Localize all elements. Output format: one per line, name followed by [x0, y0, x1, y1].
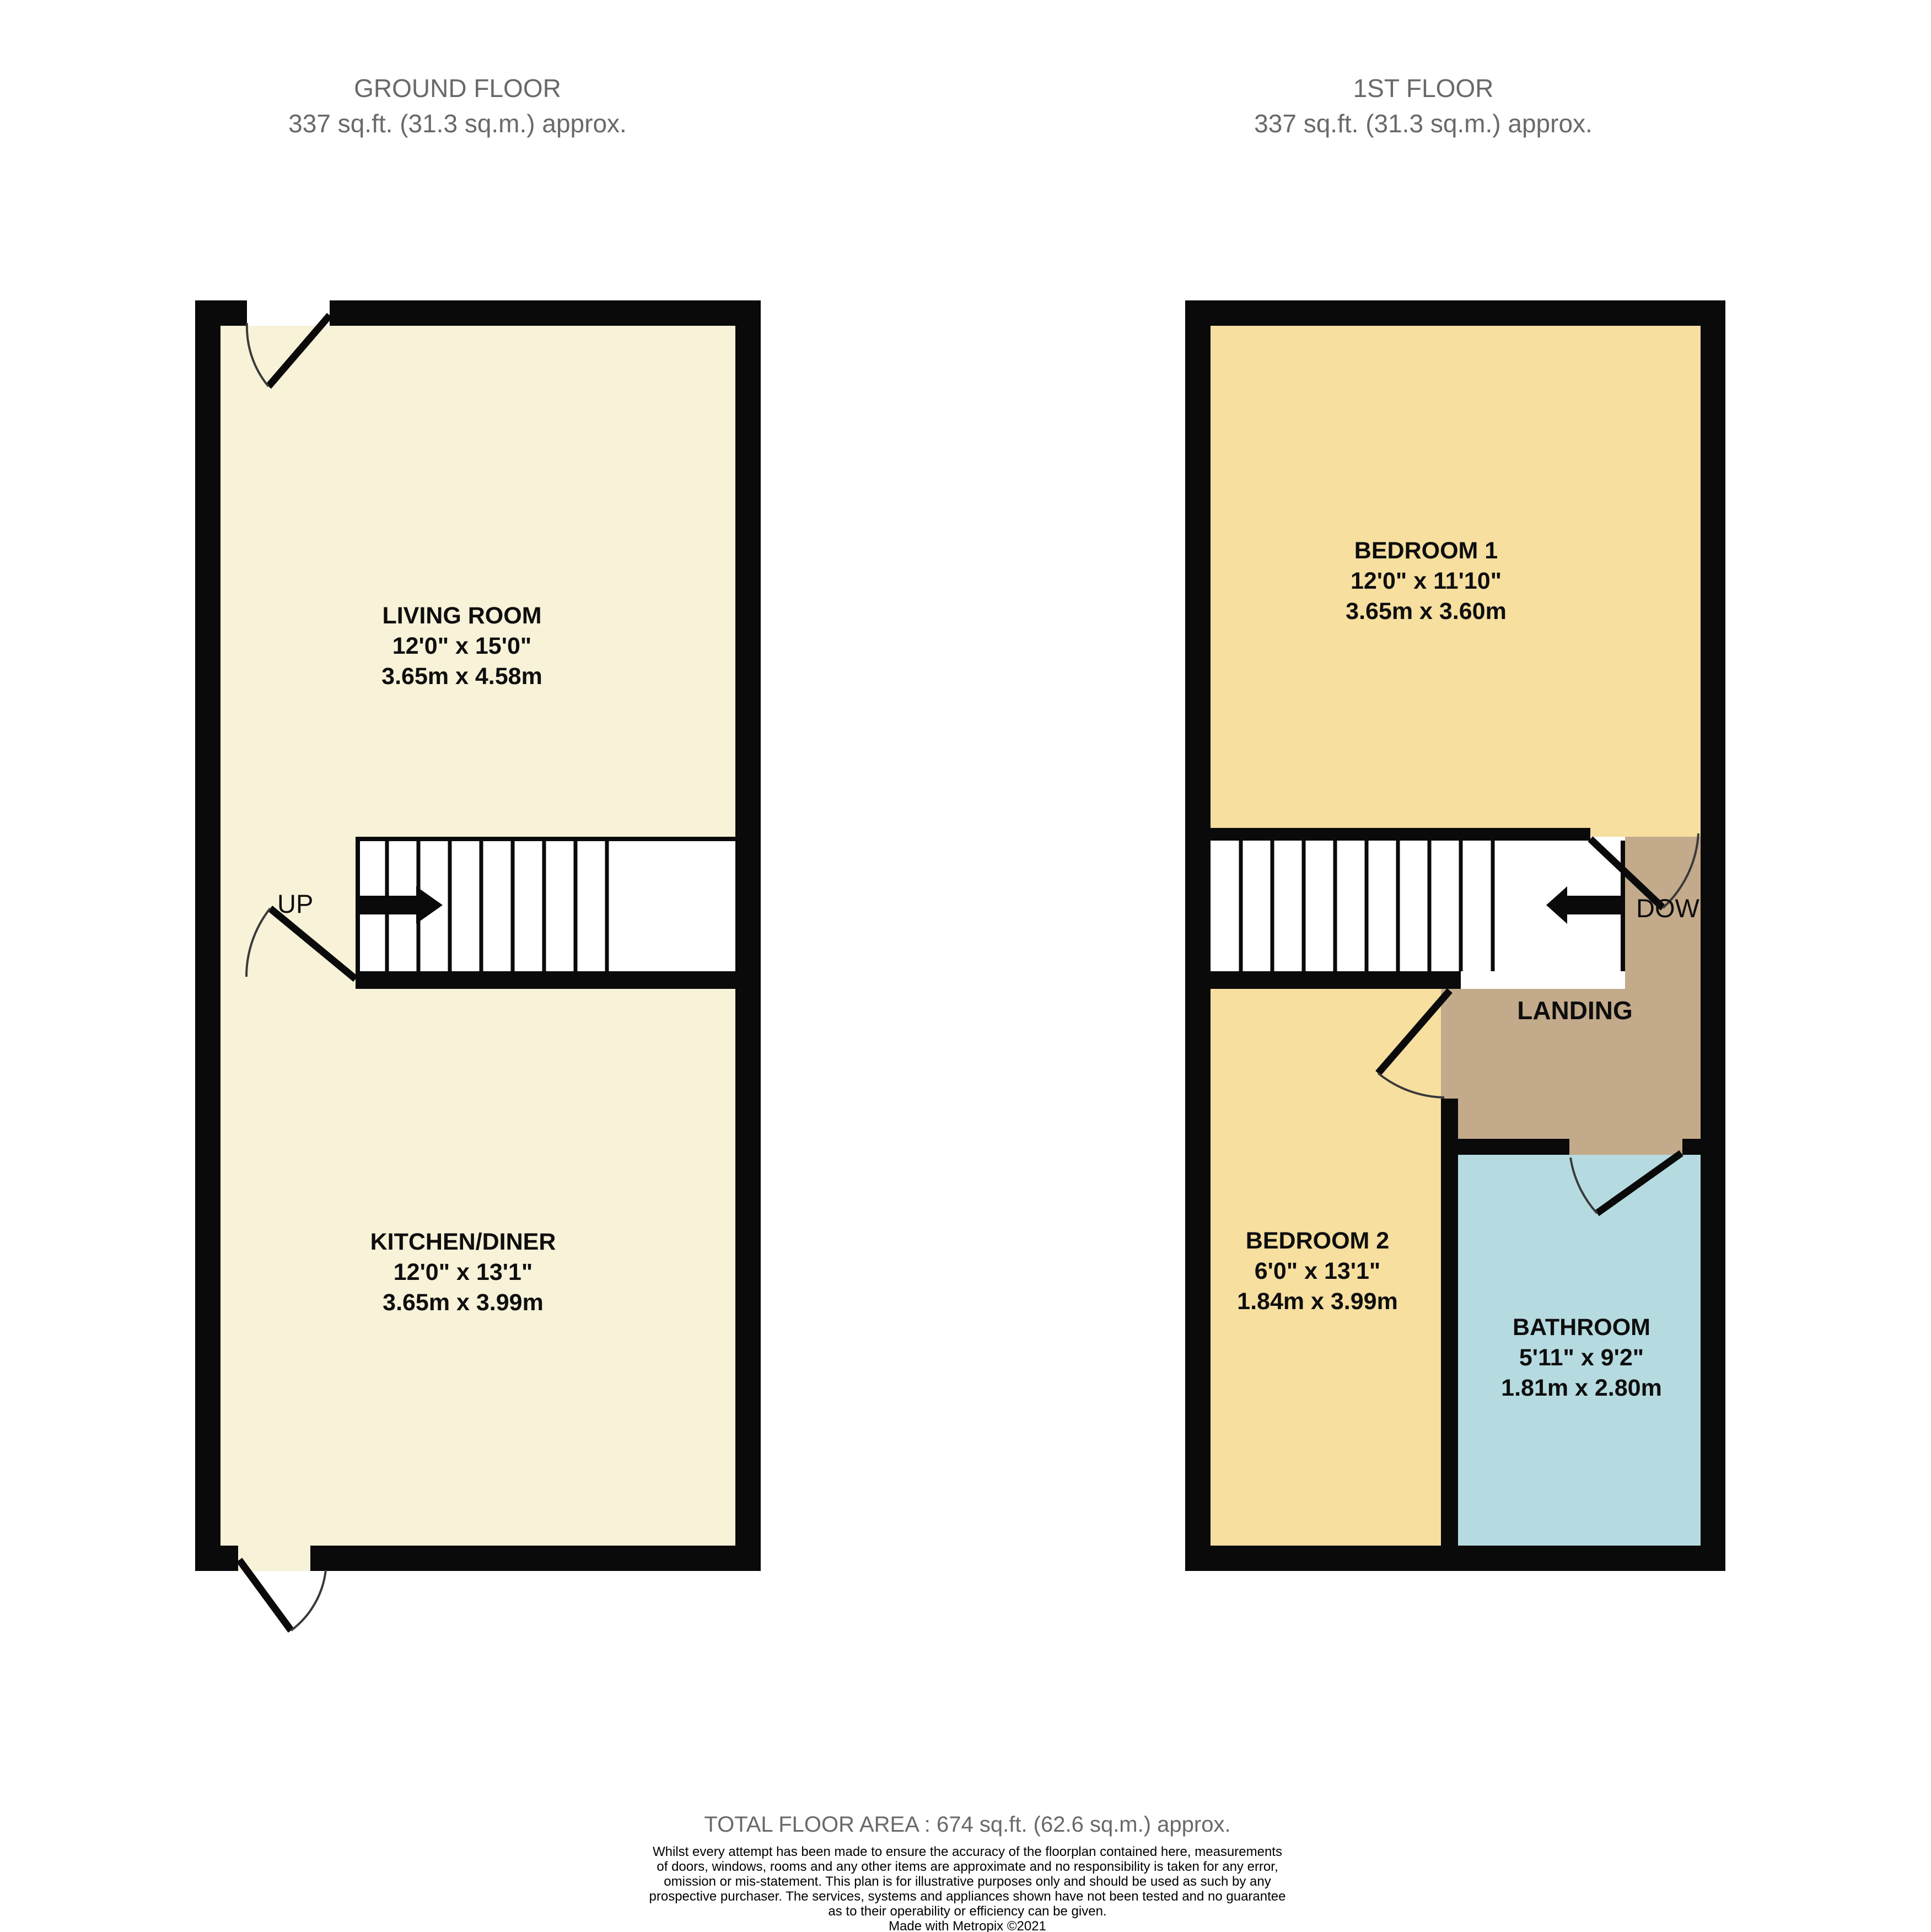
bedroom2-door-swing-arc: [1378, 1073, 1444, 1097]
disclaimer-line: of doors, windows, rooms and any other i…: [649, 1859, 1286, 1874]
wall: [330, 300, 761, 326]
wall: [356, 971, 735, 989]
total-floor-area: TOTAL FLOOR AREA : 674 sq.ft. (62.6 sq.m…: [704, 1812, 1230, 1837]
disclaimer-text: Whilst every attempt has been made to en…: [649, 1844, 1286, 1919]
first-floor-title: 1ST FLOOR: [1254, 71, 1593, 106]
living-room-label: LIVING ROOM 12'0" x 15'0" 3.65m x 4.58m: [381, 601, 542, 692]
disclaimer-line: Whilst every attempt has been made to en…: [649, 1844, 1286, 1859]
living-room-size-metric: 3.65m x 4.58m: [381, 661, 542, 692]
bathroom-label: BATHROOM 5'11" x 9'2" 1.81m x 2.80m: [1501, 1312, 1662, 1403]
bedroom1-size-imperial: 12'0" x 11'10": [1346, 566, 1507, 596]
bedroom1-label: BEDROOM 1 12'0" x 11'10" 3.65m x 3.60m: [1346, 536, 1507, 627]
landing-label: LANDING: [1517, 995, 1633, 1025]
gf-stair-top-edge: [356, 837, 735, 841]
wall: [1441, 1099, 1458, 1546]
wall: [1211, 971, 1461, 989]
kitchen-diner-size-metric: 3.65m x 3.99m: [370, 1288, 556, 1318]
back-door-leaf: [239, 1560, 291, 1630]
wall: [195, 1546, 238, 1571]
ff-staircase-region: [1211, 841, 1625, 971]
bedroom2-name: BEDROOM 2: [1237, 1226, 1398, 1256]
first-floor-header: 1ST FLOOR 337 sq.ft. (31.3 sq.m.) approx…: [1254, 71, 1593, 141]
bedroom1-size-metric: 3.65m x 3.60m: [1346, 596, 1507, 627]
gf-staircase-region: [356, 837, 735, 971]
wall: [1701, 300, 1725, 1571]
kitchen-diner-name: KITCHEN/DINER: [370, 1227, 556, 1257]
gf-stair-left-edge: [356, 837, 360, 971]
bathroom-name: BATHROOM: [1501, 1312, 1662, 1343]
bedroom1-name: BEDROOM 1: [1346, 536, 1507, 566]
disclaimer-line: prospective purchaser. The services, sys…: [649, 1889, 1286, 1904]
metropix-credit: Made with Metropix ©2021: [889, 1919, 1046, 1932]
ground-floor-area: 337 sq.ft. (31.3 sq.m.) approx.: [288, 106, 627, 141]
kitchen-door-gap: [238, 1546, 310, 1571]
living-room-name: LIVING ROOM: [381, 601, 542, 631]
up-label: UP: [277, 889, 313, 919]
disclaimer-line: omission or mis-statement. This plan is …: [649, 1874, 1286, 1889]
disclaimer-line: as to their operability or efficiency ca…: [649, 1904, 1286, 1919]
wall: [1211, 828, 1590, 841]
up-arrow-icon: [357, 886, 443, 924]
first-floor-area: 337 sq.ft. (31.3 sq.m.) approx.: [1254, 106, 1593, 141]
kitchen-door-leaf: [270, 908, 356, 979]
wall: [195, 300, 220, 1571]
ff-stair-treads: [1241, 841, 1493, 971]
wall: [310, 1546, 761, 1571]
wall: [195, 300, 247, 326]
living-room-size-imperial: 12'0" x 15'0": [381, 631, 542, 661]
landing-floor-region: [1625, 837, 1701, 1139]
wall: [1185, 300, 1725, 326]
kitchen-diner-label: KITCHEN/DINER 12'0" x 13'1" 3.65m x 3.99…: [370, 1227, 556, 1318]
bedroom2-label: BEDROOM 2 6'0" x 13'1" 1.84m x 3.99m: [1237, 1226, 1398, 1317]
wall: [1682, 1139, 1701, 1155]
bedroom2-size-metric: 1.84m x 3.99m: [1237, 1287, 1398, 1317]
bathroom-size-imperial: 5'11" x 9'2": [1501, 1343, 1662, 1373]
wall: [1458, 1139, 1569, 1155]
front-door-swing-arc: [247, 323, 268, 386]
bedroom2-door-leaf: [1378, 991, 1450, 1073]
ff-stair-right-edge: [1621, 841, 1625, 971]
kitchen-diner-size-imperial: 12'0" x 13'1": [370, 1257, 556, 1288]
down-arrow-icon: [1546, 886, 1621, 924]
back-door-swing-arc: [291, 1570, 326, 1630]
wall: [1185, 1546, 1725, 1571]
ground-floor-plan: [195, 300, 761, 1630]
ground-floor-header: GROUND FLOOR 337 sq.ft. (31.3 sq.m.) app…: [288, 71, 627, 141]
down-label: DOWN: [1636, 893, 1701, 923]
gf-door-arcs: [246, 323, 326, 1630]
bathroom-door-leaf: [1597, 1153, 1681, 1213]
gf-door-leaves: [239, 315, 356, 1630]
bedroom2-door-gap: [1441, 989, 1458, 1099]
gf-stair-treads: [387, 838, 607, 971]
wall: [1185, 300, 1211, 1571]
bedroom2-size-imperial: 6'0" x 13'1": [1237, 1256, 1398, 1287]
ground-floor-title: GROUND FLOOR: [288, 71, 627, 106]
front-door-leaf: [268, 315, 330, 386]
floorplan-canvas: GROUND FLOOR 337 sq.ft. (31.3 sq.m.) app…: [0, 0, 1931, 1932]
living-kitchen-floor-region: [220, 326, 735, 1546]
wall: [735, 300, 761, 1571]
kitchen-door-swing-arc: [246, 908, 270, 977]
bathroom-door-swing-arc: [1570, 1158, 1597, 1213]
floorplan-drawing: [0, 0, 1931, 1932]
gf-walls: [195, 300, 761, 1571]
bathroom-size-metric: 1.81m x 2.80m: [1501, 1373, 1662, 1403]
bathroom-door-gap: [1569, 1139, 1682, 1155]
